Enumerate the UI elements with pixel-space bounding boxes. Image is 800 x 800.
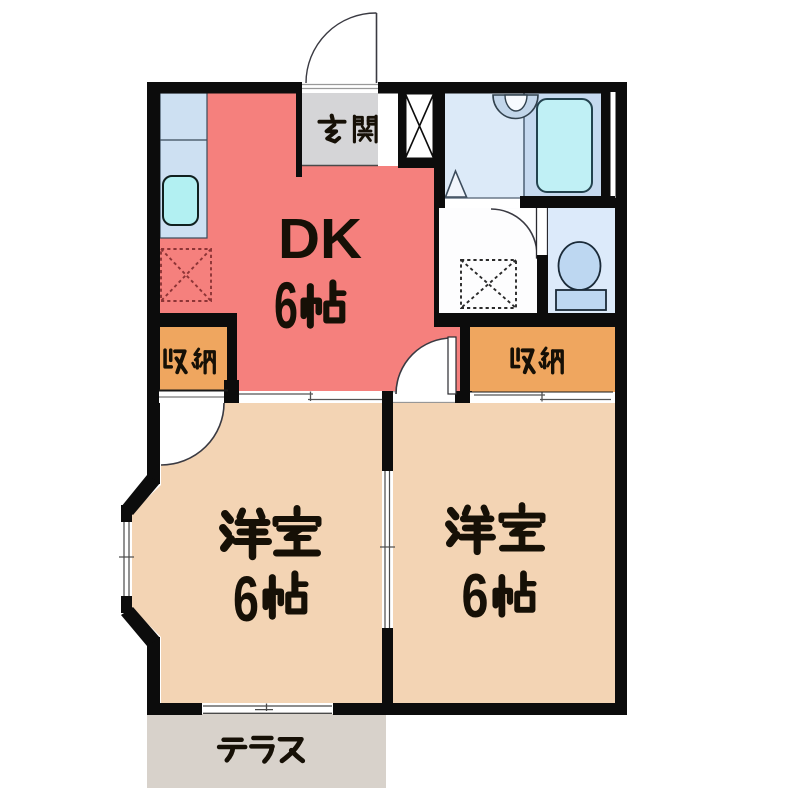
svg-text:DK: DK [278, 207, 362, 271]
svg-text:6: 6 [462, 562, 489, 631]
svg-text:6: 6 [233, 563, 259, 635]
svg-text:6: 6 [274, 268, 298, 342]
